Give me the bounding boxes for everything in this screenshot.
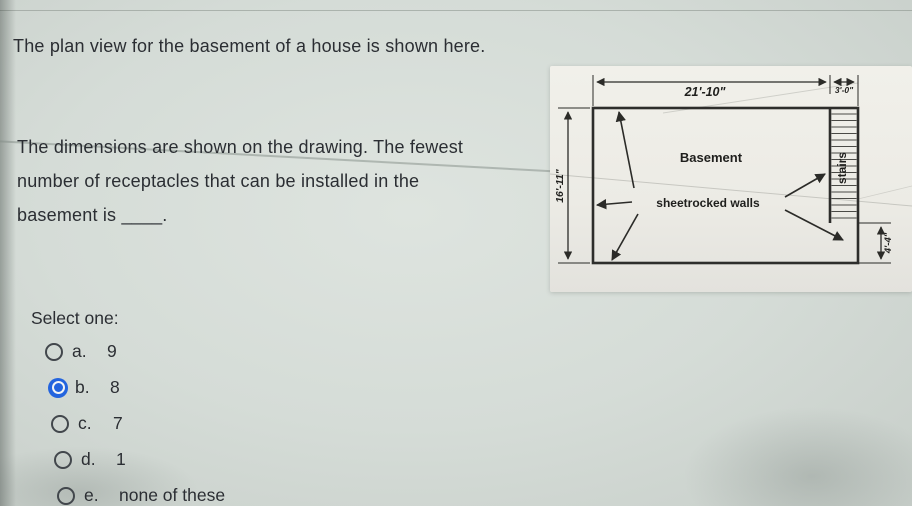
option-row[interactable]: a. 9 <box>45 341 225 362</box>
option-row[interactable]: b. 8 <box>48 377 225 398</box>
stairs-label: stairs <box>835 152 849 184</box>
question-page: The plan view for the basement of a hous… <box>0 0 912 506</box>
dim-right-bottom-height: 4'-4" <box>883 232 894 254</box>
select-one-prompt: Select one: <box>31 308 119 329</box>
option-row[interactable]: e. none of these <box>57 485 225 506</box>
question-body-line: basement is ____. <box>17 198 463 232</box>
option-radio[interactable] <box>54 451 72 469</box>
options-list: a. 9 b. 8 c. 7 d. 1 e. none of these <box>45 341 225 506</box>
option-text: 9 <box>107 341 117 362</box>
sheetrocked-walls-label: sheetrocked walls <box>656 196 760 210</box>
basement-plan-drawing: 21'-10" 3'-0" 16'-11" 4'-4" Basement she… <box>550 66 912 292</box>
option-letter: c. <box>78 413 113 434</box>
photo-smudge <box>682 406 912 506</box>
room-label: Basement <box>680 150 743 165</box>
option-row[interactable]: c. 7 <box>51 413 225 434</box>
option-text: 8 <box>110 377 120 398</box>
option-radio[interactable] <box>48 378 68 398</box>
option-letter: b. <box>75 377 110 398</box>
paper-crease-line <box>858 186 912 199</box>
option-letter: e. <box>84 485 119 506</box>
option-text: none of these <box>119 485 225 506</box>
question-body-line: The dimensions are shown on the drawing.… <box>17 130 463 164</box>
dim-stairs-width: 3'-0" <box>835 85 854 95</box>
option-text: 1 <box>116 449 126 470</box>
dim-top-width: 21'-10" <box>684 85 727 99</box>
question-body: The dimensions are shown on the drawing.… <box>17 130 463 232</box>
photo-top-edge <box>0 0 912 10</box>
dim-left-height: 16'-11" <box>554 168 566 203</box>
photo-top-edge-line <box>0 10 912 11</box>
option-letter: d. <box>81 449 116 470</box>
question-body-line: number of receptacles that can be instal… <box>17 164 463 198</box>
option-radio[interactable] <box>57 487 75 505</box>
option-letter: a. <box>72 341 107 362</box>
option-radio[interactable] <box>45 343 63 361</box>
option-radio[interactable] <box>51 415 69 433</box>
leader-arrows <box>597 112 843 260</box>
photo-left-shadow <box>0 0 16 506</box>
option-text: 7 <box>113 413 123 434</box>
plan-svg: 21'-10" 3'-0" 16'-11" 4'-4" Basement she… <box>550 66 912 292</box>
question-intro: The plan view for the basement of a hous… <box>13 36 485 57</box>
option-row[interactable]: d. 1 <box>54 449 225 470</box>
